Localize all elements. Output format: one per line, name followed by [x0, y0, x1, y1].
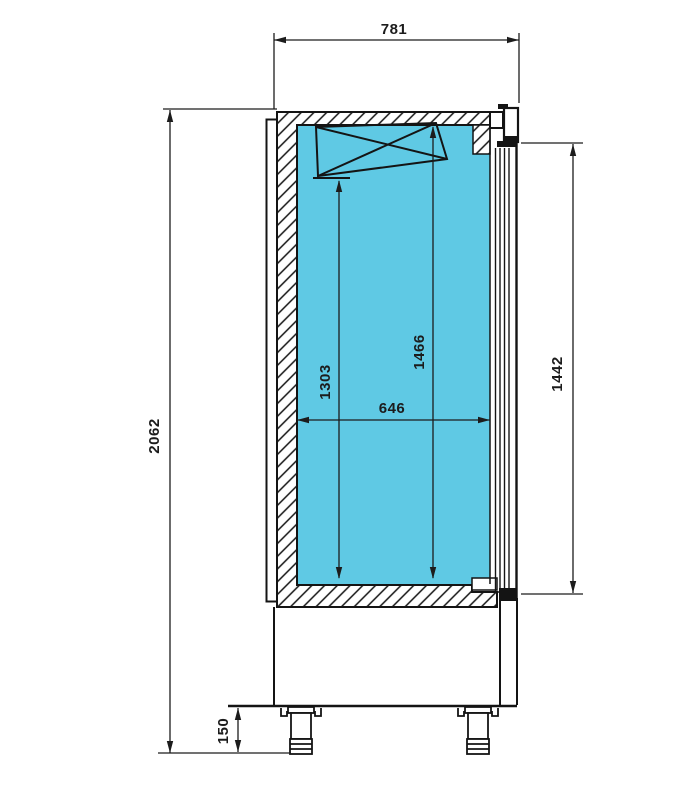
- dim-interior-height-front-label: 1466: [411, 334, 428, 369]
- interior-cavity: [297, 125, 490, 584]
- dim-door-height-label: 1442: [549, 356, 566, 391]
- dim-interior-depth-label: 646: [379, 400, 406, 417]
- top-front-insulation-step: [473, 125, 490, 154]
- hinge-tab: [498, 104, 508, 109]
- dimension-drawing-canvas: 781 2062 1442 1303: [0, 0, 700, 800]
- dim-overall-depth-label: 781: [381, 21, 408, 38]
- top-hinge: [497, 141, 517, 147]
- door-bottom-bracket: [499, 588, 516, 601]
- top-front-frame-piece: [490, 112, 503, 128]
- dim-leg-height-label: 150: [215, 718, 232, 745]
- door-sill-step: [472, 578, 497, 590]
- dim-overall-height-label: 2062: [146, 418, 163, 453]
- dim-interior-height-rear-label: 1303: [317, 364, 334, 399]
- cabinet-side-view-drawing: 781 2062 1442 1303: [0, 0, 700, 800]
